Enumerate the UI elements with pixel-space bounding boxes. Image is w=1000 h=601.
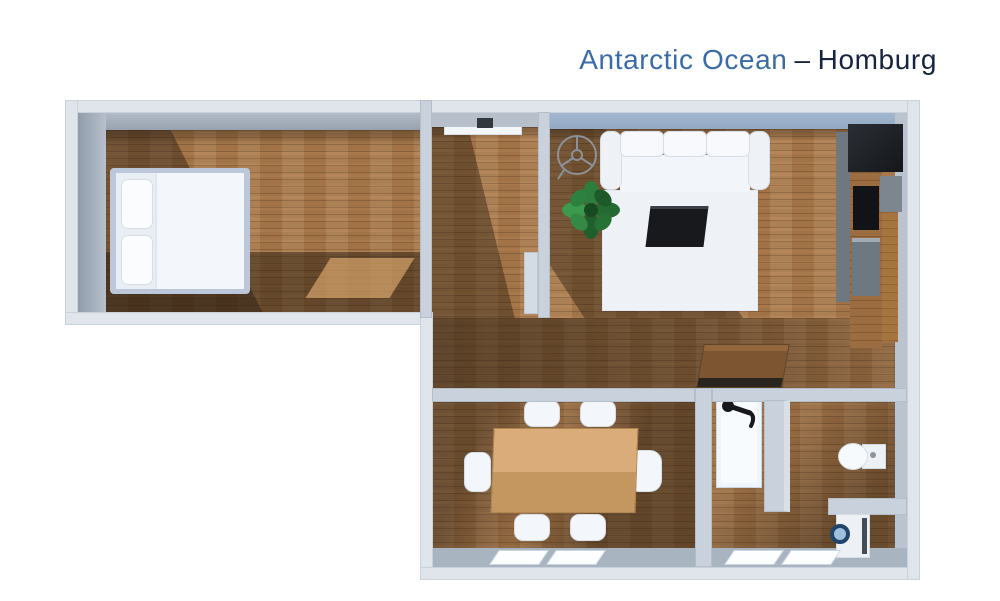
page-title: Antarctic Ocean–Homburg	[400, 44, 937, 76]
wall-shower-partition	[764, 400, 790, 512]
sofa-seat	[620, 155, 750, 192]
sofa-armrest	[748, 131, 770, 190]
floor-plan-page: Antarctic Ocean–Homburg	[0, 0, 1000, 601]
wall-hallway-dining	[432, 388, 695, 402]
refrigerator-top	[848, 124, 903, 172]
title-location: Homburg	[818, 44, 937, 75]
dining-chair	[524, 400, 560, 427]
dining-chair	[464, 452, 491, 492]
console-object	[477, 118, 493, 128]
outer-wall-bottom	[420, 567, 920, 580]
dining-chair	[514, 514, 550, 541]
outer-wall-bottomwing-left	[420, 312, 433, 580]
washing-machine-door	[830, 524, 850, 544]
entry-hall-floor	[432, 127, 538, 318]
wall-laundry-nook	[828, 498, 907, 515]
oven	[852, 238, 880, 296]
bed-pillow	[121, 179, 153, 229]
outer-wall-left	[65, 100, 78, 325]
bedroom-left-wall-face	[78, 113, 106, 312]
sofa-back-cushion	[706, 131, 750, 157]
bedroom-wall-shadow	[106, 130, 420, 146]
toilet-bowl	[838, 443, 868, 470]
title-separator: –	[794, 44, 810, 75]
outer-wall-leftwing-bottom	[65, 312, 432, 325]
sofa-back-cushion	[620, 131, 664, 157]
wall-hallway-bathroom	[712, 388, 907, 402]
bedroom-top-wall-face	[78, 113, 420, 130]
outer-wall-top	[65, 100, 920, 113]
desk	[696, 344, 790, 388]
dining-window	[546, 550, 606, 565]
wall-bedroom-entry	[420, 100, 432, 318]
cooktop	[853, 186, 879, 230]
dining-window	[489, 550, 549, 565]
potted-plant-icon	[560, 180, 622, 240]
ceiling-fan-icon	[554, 134, 600, 180]
wall-dining-bathroom	[695, 388, 712, 567]
bathroom-window	[781, 550, 841, 565]
outer-wall-right	[907, 100, 920, 580]
title-property-name: Antarctic Ocean	[579, 44, 787, 75]
hallway-floor	[432, 318, 895, 388]
bed-duvet	[155, 173, 244, 289]
microwave	[880, 176, 902, 212]
entry-door-leaf	[524, 252, 538, 314]
sofa-back-cushion	[663, 131, 707, 157]
bed-pillow	[121, 235, 153, 285]
dining-chair	[570, 514, 606, 541]
kitchen-cabinet-strip	[882, 212, 898, 342]
sofa	[600, 131, 770, 192]
shower-fixture-icon	[718, 398, 760, 434]
coffee-table	[645, 206, 708, 247]
wall-entry-living	[538, 112, 550, 318]
washing-machine-slot	[862, 518, 867, 554]
toilet-button	[870, 452, 876, 458]
dining-table	[491, 428, 639, 513]
dining-chair	[580, 400, 616, 427]
bathroom-window	[724, 550, 784, 565]
